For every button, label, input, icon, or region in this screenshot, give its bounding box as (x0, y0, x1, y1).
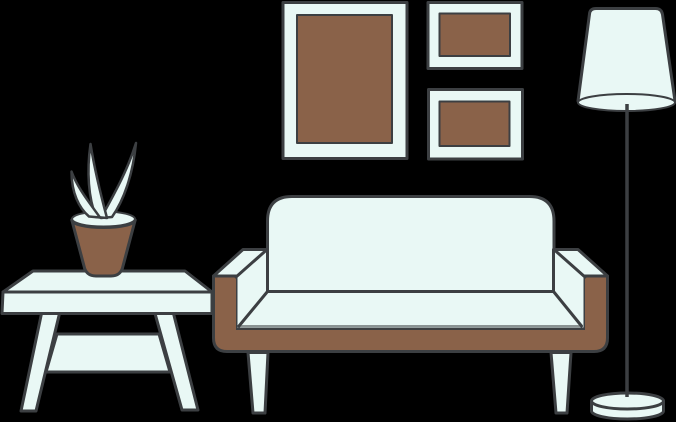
sofa-leg-left (248, 353, 268, 414)
frame-artwork (440, 102, 510, 147)
frame-artwork (440, 14, 511, 57)
living-room-illustration (0, 0, 676, 422)
table-apron (2, 292, 212, 314)
sofa-backrest-cushion (268, 197, 555, 297)
table-shelf (46, 334, 170, 372)
sofa-leg-right (551, 353, 571, 414)
illustration-canvas (0, 0, 676, 422)
picture-frame-large (283, 3, 407, 159)
frame-artwork (297, 15, 392, 143)
picture-frame-small-top (428, 3, 522, 69)
picture-frame-small-bottom (429, 90, 523, 160)
